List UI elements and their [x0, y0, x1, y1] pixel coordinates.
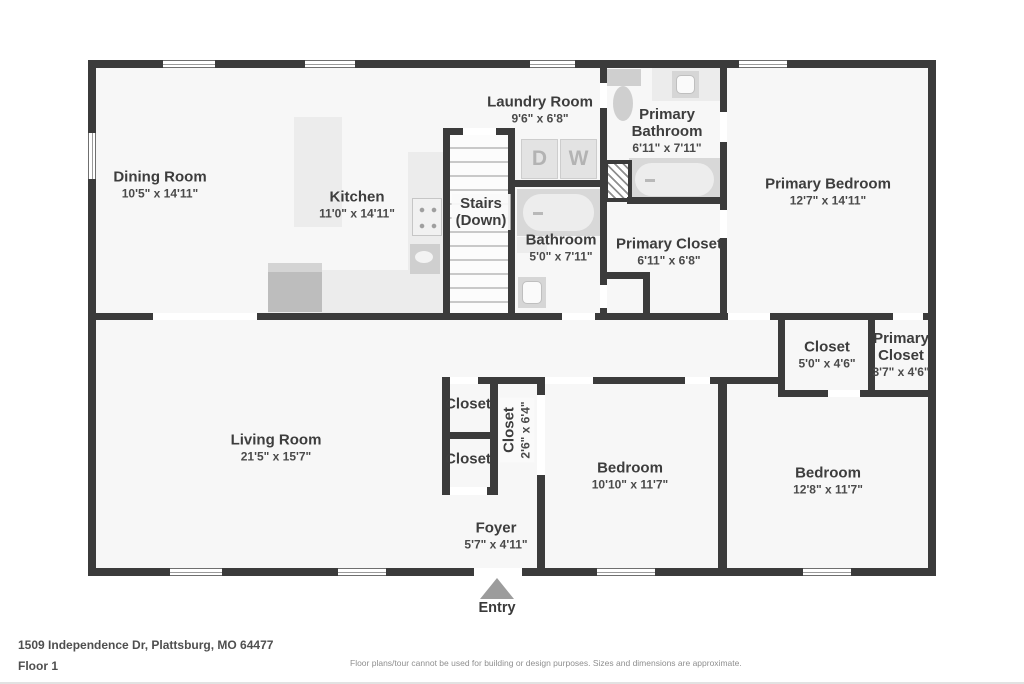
primary-bath-sink-icon	[672, 71, 699, 98]
window	[88, 133, 96, 179]
wall	[88, 60, 936, 68]
door-opening	[463, 128, 496, 135]
door-opening	[893, 313, 923, 320]
room-dimensions: 10'5" x 14'11"	[113, 186, 206, 202]
wall	[727, 377, 778, 384]
room-name: Stairs	[456, 195, 507, 212]
room-name: Bedroom	[793, 465, 863, 482]
wall	[443, 128, 463, 135]
wall	[720, 68, 727, 112]
room-dimensions: 6'11" x 7'11"	[632, 140, 703, 156]
washer-icon: W	[560, 139, 597, 179]
wall	[600, 68, 607, 83]
door-opening	[474, 568, 522, 576]
kitchen-sink-icon	[410, 244, 440, 274]
room-name: Closet	[798, 339, 855, 356]
floor-plan-page: DW Dining Room10'5" x 14'11"Kitchen11'0"…	[0, 0, 1024, 684]
room-dimensions: 5'7" x 4'11"	[464, 537, 527, 553]
wall	[600, 108, 607, 187]
wall	[595, 313, 728, 320]
refrigerator-icon	[268, 263, 322, 312]
toilet-tank-icon	[605, 69, 641, 86]
door-opening	[562, 313, 595, 320]
room-name: Bedroom	[592, 460, 668, 477]
room-label-foyer: Foyer5'7" x 4'11"	[464, 520, 527, 553]
room-label-primary-bathroom: PrimaryBathroom6'11" x 7'11"	[632, 106, 703, 156]
wall	[490, 377, 498, 495]
wall	[88, 313, 153, 320]
door-opening	[720, 112, 727, 142]
wall	[720, 142, 727, 210]
wall	[537, 475, 545, 568]
room-label-kitchen: Kitchen11'0" x 14'11"	[319, 189, 395, 222]
wall	[478, 377, 545, 384]
door-opening	[537, 395, 545, 475]
door-opening	[153, 313, 257, 320]
room-label-bathroom: Bathroom5'0" x 7'11"	[526, 232, 597, 265]
wall	[593, 377, 685, 384]
door-opening	[685, 377, 710, 384]
room-name: Closet	[445, 396, 491, 413]
door-opening	[728, 313, 770, 320]
room-label-primary-closet: Primary Closet6'11" x 6'8"	[616, 236, 722, 269]
window	[338, 568, 386, 576]
room-name: Laundry Room	[487, 94, 593, 111]
toilet-bowl-icon	[613, 86, 633, 121]
room-dimensions: 11'0" x 14'11"	[319, 206, 395, 222]
bathtub-icon	[517, 189, 600, 236]
door-opening	[828, 390, 860, 397]
room-name: Closet	[872, 347, 929, 364]
wall	[627, 197, 720, 204]
stove-icon	[412, 198, 442, 236]
wall	[537, 377, 545, 395]
room-label-closet-vertical: Closet2'6" x 6'4"	[500, 397, 535, 462]
window	[739, 60, 787, 68]
room-name: Bathroom	[632, 123, 703, 140]
wall	[718, 383, 727, 568]
room-name: Bathroom	[526, 232, 597, 249]
room-dimensions: 21'5" x 15'7"	[231, 449, 322, 465]
door-opening	[720, 210, 727, 238]
door-opening	[600, 285, 607, 308]
room-dimensions: 12'8" x 11'7"	[793, 482, 863, 498]
room-dimensions: 5'0" x 4'6"	[798, 356, 855, 372]
wall	[778, 390, 828, 397]
floor-number-label: Floor 1	[18, 659, 58, 673]
wall	[443, 128, 450, 320]
bathroom-sink-icon	[518, 277, 546, 308]
window	[530, 60, 575, 68]
wall	[923, 313, 936, 320]
room-dimensions: 6'11" x 6'8"	[616, 253, 722, 269]
room-name: Dining Room	[113, 169, 206, 186]
room-name: (Down)	[456, 212, 507, 229]
address-text: 1509 Independence Dr, Plattsburg, MO 644…	[18, 638, 273, 652]
wall	[515, 180, 607, 187]
room-label-closet-b: Closet	[445, 451, 491, 468]
room-label-primary-closet-small: PrimaryCloset3'7" x 4'6"	[872, 330, 929, 380]
room-label-living-room: Living Room21'5" x 15'7"	[231, 432, 322, 465]
room-label-laundry-room: Laundry Room9'6" x 6'8"	[487, 94, 593, 127]
room-name: Primary Closet	[616, 236, 722, 253]
wall	[487, 487, 498, 495]
room-name: Living Room	[231, 432, 322, 449]
room-dimensions: 10'10" x 11'7"	[592, 477, 668, 493]
window	[305, 60, 355, 68]
room-label-bedroom-right: Bedroom12'8" x 11'7"	[793, 465, 863, 498]
room-name: Closet	[501, 401, 518, 458]
room-dimensions: 2'6" x 6'4"	[518, 401, 534, 458]
room-name: Foyer	[464, 520, 527, 537]
room-label-primary-bedroom: Primary Bedroom12'7" x 14'11"	[765, 176, 891, 209]
room-dimensions: 12'7" x 14'11"	[765, 193, 891, 209]
room-label-closet-mid: Closet5'0" x 4'6"	[798, 339, 855, 372]
room-name: Kitchen	[319, 189, 395, 206]
wall	[860, 390, 936, 397]
door-opening	[600, 83, 607, 108]
room-dimensions: 5'0" x 7'11"	[526, 249, 597, 265]
room-name: Primary Bedroom	[765, 176, 891, 193]
entry-arrow-icon	[480, 578, 514, 599]
room-dimensions: 3'7" x 4'6"	[872, 364, 929, 380]
window	[597, 568, 655, 576]
room-label-dining-room: Dining Room10'5" x 14'11"	[113, 169, 206, 202]
room-name: Primary	[872, 330, 929, 347]
door-opening	[545, 377, 593, 384]
entry-label: Entry	[478, 600, 515, 616]
floor-plan: DW Dining Room10'5" x 14'11"Kitchen11'0"…	[0, 0, 1024, 682]
shower-hatch-icon	[604, 160, 632, 202]
door-opening	[450, 377, 478, 384]
disclaimer-text: Floor plans/tour cannot be used for buil…	[350, 658, 742, 668]
room-name: Primary	[632, 106, 703, 123]
wall	[778, 313, 785, 397]
dryer-icon: D	[521, 139, 558, 179]
window	[803, 568, 851, 576]
room-label-closet-a: Closet	[445, 396, 491, 413]
primary-bathtub-icon	[629, 158, 720, 201]
wall	[496, 128, 515, 135]
wall	[600, 187, 607, 285]
door-opening	[450, 487, 487, 495]
room-dimensions: 9'6" x 6'8"	[487, 111, 593, 127]
room-label-bedroom-center: Bedroom10'10" x 11'7"	[592, 460, 668, 493]
window	[163, 60, 215, 68]
wall	[257, 313, 562, 320]
window	[170, 568, 222, 576]
room-label-stairs: Stairs(Down)	[452, 194, 511, 230]
room-name: Closet	[445, 451, 491, 468]
